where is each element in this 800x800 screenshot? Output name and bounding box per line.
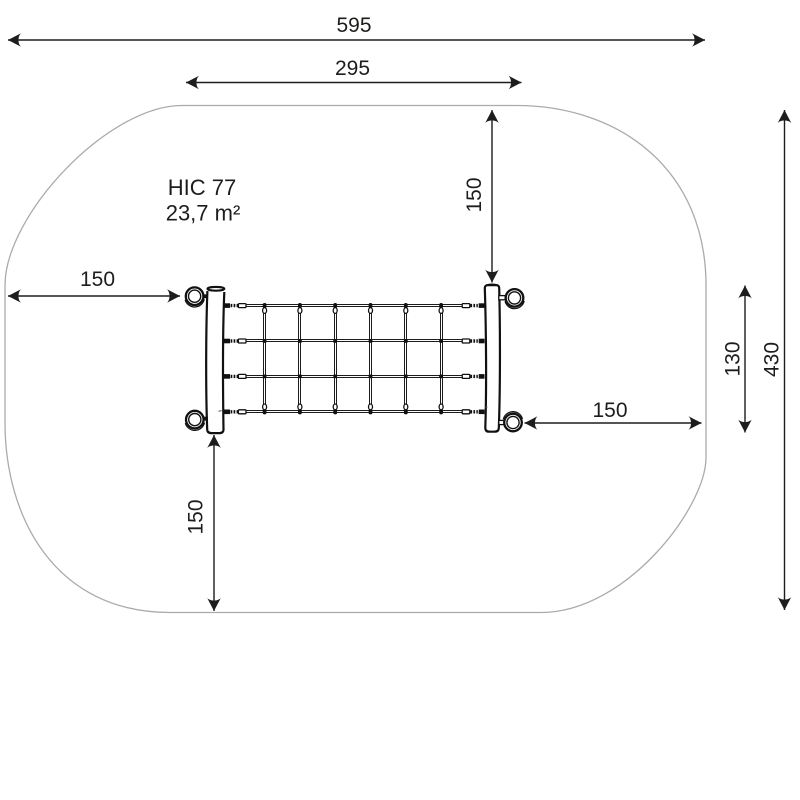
svg-text:130: 130 [722, 341, 745, 376]
svg-text:HIC 77: HIC 77 [168, 175, 236, 200]
svg-text:150: 150 [185, 499, 208, 534]
svg-text:150: 150 [80, 268, 115, 291]
svg-text:295: 295 [335, 57, 370, 80]
svg-text:150: 150 [463, 177, 486, 212]
svg-text:595: 595 [336, 14, 371, 37]
svg-text:430: 430 [761, 342, 784, 377]
svg-text:23,7 m²: 23,7 m² [166, 201, 241, 226]
svg-text:150: 150 [592, 399, 627, 422]
